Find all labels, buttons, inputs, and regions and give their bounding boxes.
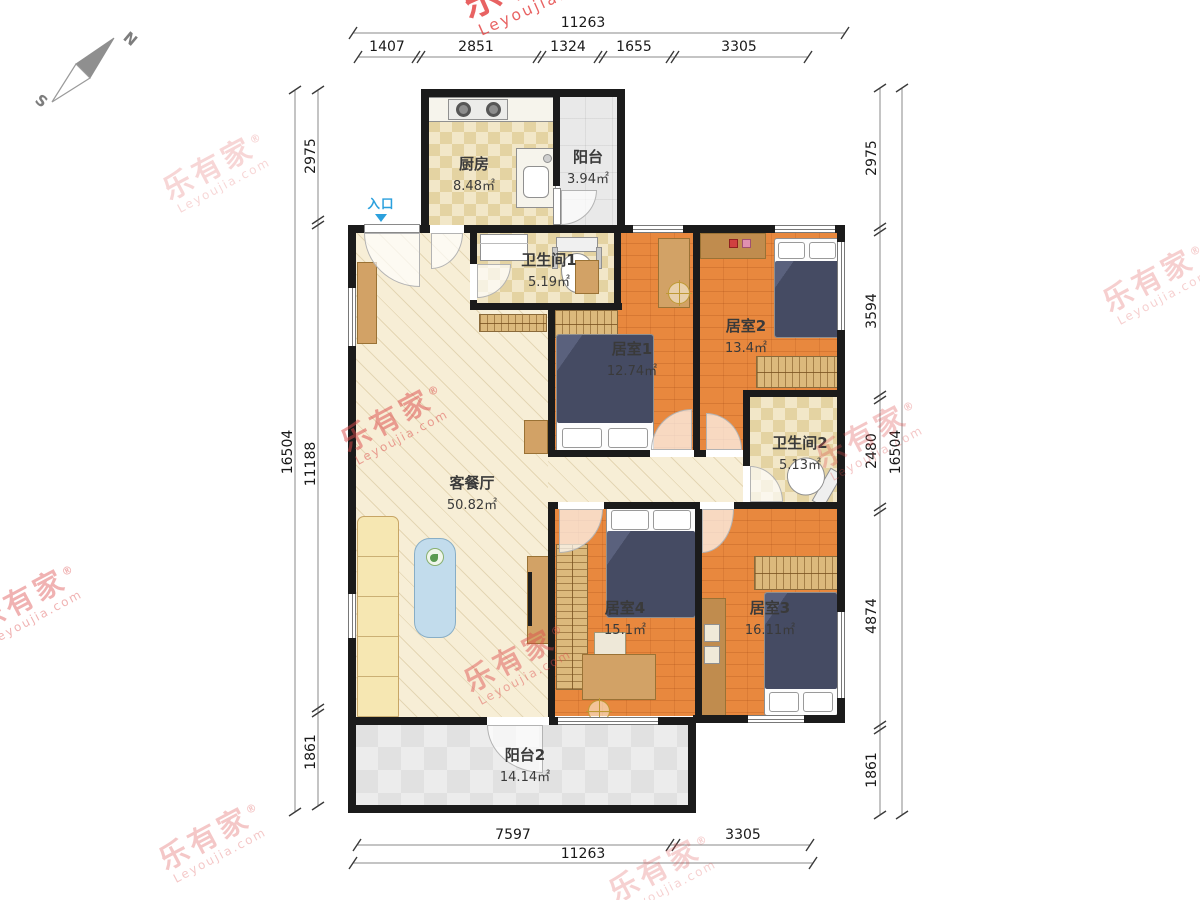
wall <box>548 303 555 457</box>
window <box>775 225 835 233</box>
bedroom1-pillow <box>608 428 648 448</box>
hallway-floor <box>548 457 743 503</box>
dim-left-seg: 2975 <box>303 126 319 186</box>
living-cabinet <box>524 420 548 454</box>
room-label-balcony2: 阳台2 14.14㎡ <box>500 744 550 785</box>
wall <box>743 390 845 397</box>
window <box>348 594 356 638</box>
door-opening <box>470 264 477 300</box>
bedroom2-bed-duvet <box>775 261 839 337</box>
stove-burner-icon <box>456 102 471 117</box>
window <box>837 242 845 330</box>
room-label-bedroom2: 居室2 13.4㎡ <box>725 315 767 356</box>
bedroom2-pillow <box>778 242 805 259</box>
dim-left-overall: 16504 <box>280 422 296 482</box>
dim-bottom-seg: 3305 <box>713 827 773 843</box>
dim-right-seg: 1861 <box>864 740 880 800</box>
dim-top-seg: 1407 <box>357 39 417 55</box>
room-label-living: 客餐厅 50.82㎡ <box>447 472 497 513</box>
window <box>348 288 356 346</box>
dresser-item <box>742 239 751 248</box>
room-label-bedroom4: 居室4 15.1㎡ <box>604 597 646 638</box>
bedroom3-pillow <box>769 692 799 712</box>
dim-top-seg: 1655 <box>604 39 664 55</box>
wall <box>421 89 625 97</box>
door-opening <box>650 450 694 457</box>
wall <box>695 509 702 715</box>
window <box>748 715 804 723</box>
wall <box>553 89 560 186</box>
bedroom1-pillow <box>562 428 602 448</box>
wall <box>617 89 625 232</box>
bedroom4-desk <box>582 654 656 700</box>
window <box>633 225 683 233</box>
brand-watermark: 乐有家® Leyoujia.com <box>140 117 293 227</box>
ceiling-fan-icon <box>668 282 690 304</box>
wall <box>688 725 696 813</box>
entrance-arrow-icon <box>375 214 387 222</box>
sofa <box>357 516 399 722</box>
cabinet-drawer <box>704 646 720 664</box>
dim-top-overall: 11263 <box>553 15 613 31</box>
bedroom4-pillow <box>611 510 649 530</box>
brand-watermark: 乐有家® Leyoujia.com <box>0 549 106 659</box>
dim-bottom-seg: 7597 <box>483 827 543 843</box>
bedroom2-wardrobe <box>756 356 838 388</box>
entry-door-leaf <box>364 224 420 233</box>
room-label-kitchen: 厨房 8.48㎡ <box>453 153 495 194</box>
faucet-icon <box>543 154 552 163</box>
bedroom2-pillow <box>809 242 836 259</box>
door-opening <box>487 717 549 725</box>
entrance-marker: 入口 <box>360 193 402 222</box>
balcony1-door-leaf <box>553 188 561 225</box>
brand-watermark: 乐有家® Leyoujia.com <box>136 787 289 897</box>
room-label-balcony1: 阳台 3.94㎡ <box>567 146 609 187</box>
shoe-cabinet <box>479 314 547 332</box>
door-opening <box>706 450 743 457</box>
wall <box>421 89 429 232</box>
room-label-bathroom2: 卫生间2 5.13㎡ <box>772 432 827 473</box>
room-label-bathroom1: 卫生间1 5.19㎡ <box>521 249 576 290</box>
window <box>837 612 845 698</box>
living-shelf <box>357 262 377 344</box>
wall <box>693 225 700 457</box>
dim-top-seg: 3305 <box>709 39 769 55</box>
door-opening <box>700 502 734 509</box>
dim-right-seg: 2975 <box>864 128 880 188</box>
compass-icon <box>38 26 134 116</box>
kitchen-sink <box>523 166 549 198</box>
dim-top-seg: 2851 <box>446 39 506 55</box>
dim-bottom-overall: 11263 <box>553 846 613 862</box>
wall <box>348 725 356 813</box>
dim-right-seg: 4874 <box>864 586 880 646</box>
tv <box>528 572 532 626</box>
dim-right-seg: 2480 <box>864 421 880 481</box>
floorplan-canvas: 厨房 8.48㎡ 阳台 3.94㎡ 卫生间1 5.19㎡ 居室1 12.74㎡ … <box>0 0 1200 900</box>
dim-right-seg: 3594 <box>864 281 880 341</box>
bathroom1-washer-line <box>480 243 528 244</box>
room-label-bedroom3: 居室3 16.11㎡ <box>745 597 795 638</box>
wall <box>548 509 555 717</box>
plant-icon <box>426 548 444 566</box>
room-label-bedroom1: 居室1 12.74㎡ <box>607 338 657 379</box>
door-opening <box>430 225 464 233</box>
dim-top-seg: 1324 <box>538 39 598 55</box>
door-opening <box>558 502 604 509</box>
stove-burner-icon <box>486 102 501 117</box>
bedroom4-pillow <box>653 510 691 530</box>
brand-watermark: 乐有家® Leyoujia.com <box>1080 229 1200 339</box>
window <box>558 717 658 725</box>
wall <box>470 303 622 310</box>
wall <box>348 805 696 813</box>
dim-left-seg: 11188 <box>303 434 319 494</box>
bedroom3-pillow <box>803 692 833 712</box>
bedroom3-wardrobe <box>754 556 838 590</box>
dresser-item <box>729 239 738 248</box>
door-opening <box>743 466 750 502</box>
cabinet-drawer <box>704 624 720 642</box>
dim-right-overall: 16504 <box>888 422 904 482</box>
bedroom1-chair <box>575 260 599 294</box>
wall <box>614 232 621 310</box>
dim-left-seg: 1861 <box>303 722 319 782</box>
